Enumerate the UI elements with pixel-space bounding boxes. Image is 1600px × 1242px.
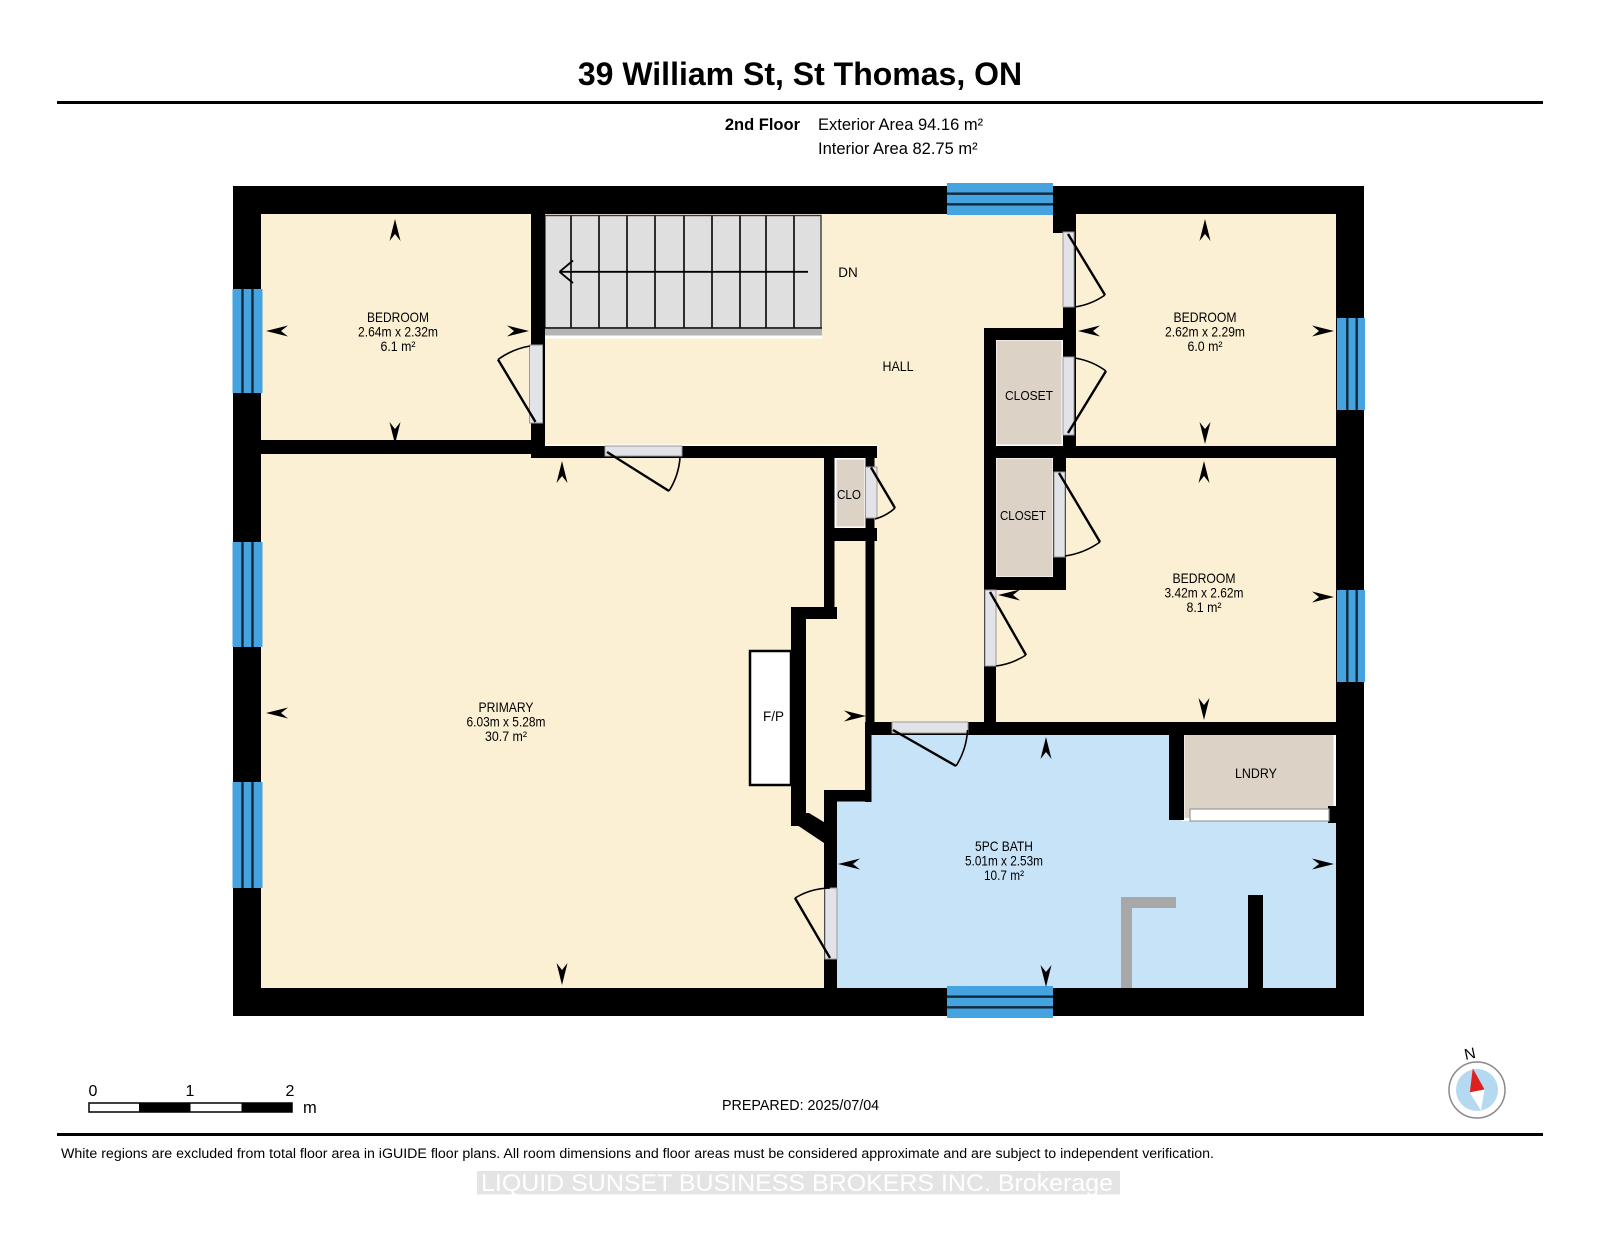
svg-text:HALL: HALL (883, 358, 914, 374)
svg-text:CLO: CLO (837, 488, 861, 502)
svg-text:39 William St, St Thomas, ON: 39 William St, St Thomas, ON (578, 56, 1022, 92)
svg-text:2: 2 (286, 1083, 295, 1100)
svg-text:m: m (303, 1099, 317, 1117)
svg-text:0: 0 (89, 1083, 98, 1100)
svg-text:Interior Area 82.75 m²: Interior Area 82.75 m² (818, 140, 978, 158)
svg-text:CLOSET: CLOSET (1000, 508, 1046, 523)
svg-text:6.1 m²: 6.1 m² (381, 338, 416, 354)
svg-text:10.7 m²: 10.7 m² (984, 867, 1024, 883)
svg-text:F/P: F/P (763, 709, 784, 724)
svg-text:1: 1 (186, 1083, 195, 1100)
svg-text:30.7 m²: 30.7 m² (485, 728, 527, 744)
svg-text:White regions are excluded fro: White regions are excluded from total fl… (61, 1146, 1214, 1162)
svg-text:2nd Floor: 2nd Floor (725, 116, 801, 134)
svg-text:DN: DN (838, 265, 858, 280)
svg-text:8.1 m²: 8.1 m² (1187, 599, 1222, 615)
svg-text:LIQUID SUNSET BUSINESS BROKERS: LIQUID SUNSET BUSINESS BROKERS INC. Brok… (481, 1170, 1113, 1197)
svg-text:LNDRY: LNDRY (1235, 766, 1277, 781)
svg-text:CLOSET: CLOSET (1005, 388, 1053, 403)
svg-text:Exterior Area 94.16 m²: Exterior Area 94.16 m² (818, 116, 984, 134)
svg-text:6.0 m²: 6.0 m² (1188, 338, 1223, 354)
svg-text:PREPARED: 2025/07/04: PREPARED: 2025/07/04 (722, 1098, 879, 1114)
